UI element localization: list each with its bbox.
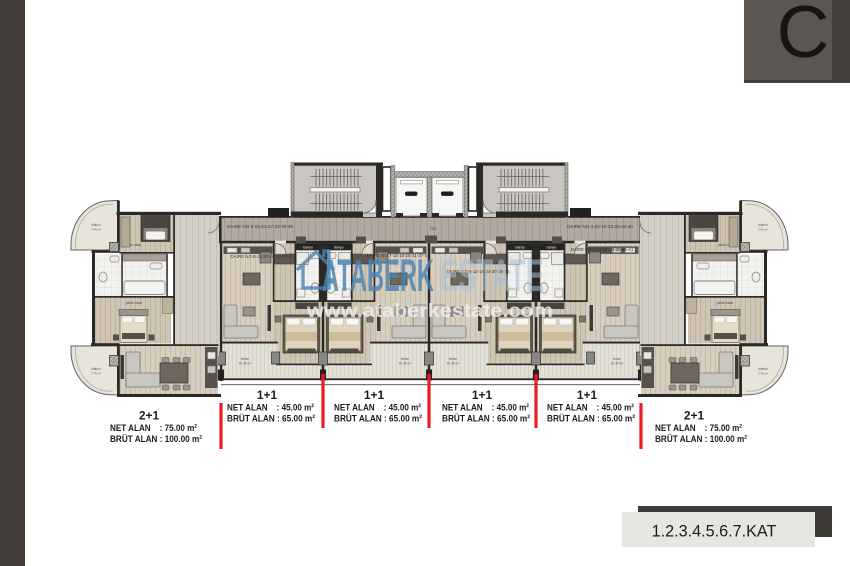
svg-text:C: C bbox=[777, 0, 830, 73]
svg-text:BRÜT ALAN : 100.00 m²: BRÜT ALAN : 100.00 m² bbox=[110, 433, 202, 444]
svg-text:teras: teras bbox=[613, 357, 621, 361]
svg-text:BRÜT ALAN : 65.00 m²: BRÜT ALAN : 65.00 m² bbox=[227, 413, 315, 424]
svg-text:NET ALAN : 45.00 m²: NET ALAN : 45.00 m² bbox=[334, 402, 421, 413]
svg-text:15.45 m²: 15.45 m² bbox=[239, 362, 252, 366]
svg-text:ATABERK: ATABERK bbox=[322, 250, 434, 301]
svg-text:1+1: 1+1 bbox=[364, 388, 385, 402]
svg-text:teras: teras bbox=[241, 357, 249, 361]
svg-text:2+1: 2+1 bbox=[139, 409, 160, 423]
svg-text:15.45 m²: 15.45 m² bbox=[611, 362, 624, 366]
svg-text:DAIRE NO 8-14-20-26-32-38-44: DAIRE NO 8-14-20-26-32-38-44 bbox=[231, 254, 295, 259]
svg-text:1+1: 1+1 bbox=[577, 388, 598, 402]
svg-text:1+1: 1+1 bbox=[472, 388, 493, 402]
svg-text:NET ALAN : 45.00 m²: NET ALAN : 45.00 m² bbox=[227, 402, 314, 413]
svg-text:NET ALAN : 75.00 m²: NET ALAN : 75.00 m² bbox=[110, 422, 197, 433]
svg-text:7.75 m²: 7.75 m² bbox=[91, 372, 101, 376]
svg-text:www.ataberkestate.com: www.ataberkestate.com bbox=[306, 300, 553, 322]
svg-text:BRÜT ALAN : 100.00 m²: BRÜT ALAN : 100.00 m² bbox=[655, 433, 747, 444]
svg-text:BRÜT ALAN : 65.00 m²: BRÜT ALAN : 65.00 m² bbox=[442, 413, 530, 424]
svg-text:teras: teras bbox=[401, 357, 409, 361]
svg-text:teras: teras bbox=[449, 357, 457, 361]
svg-text:banyo: banyo bbox=[547, 246, 557, 250]
svg-text:NET ALAN : 75.00 m²: NET ALAN : 75.00 m² bbox=[655, 422, 742, 433]
svg-text:15.45 m²: 15.45 m² bbox=[447, 362, 460, 366]
svg-text:BRÜT ALAN : 65.00 m²: BRÜT ALAN : 65.00 m² bbox=[334, 413, 422, 424]
svg-text:balkon: balkon bbox=[758, 223, 768, 227]
svg-text:balkon: balkon bbox=[91, 223, 101, 227]
svg-text:yatak odasi: yatak odasi bbox=[717, 301, 733, 305]
svg-text:NET ALAN : 45.00 m²: NET ALAN : 45.00 m² bbox=[547, 402, 634, 413]
svg-text:ESTATE: ESTATE bbox=[440, 250, 544, 301]
svg-text:7.96 m²: 7.96 m² bbox=[758, 228, 768, 232]
svg-text:balkon: balkon bbox=[91, 367, 101, 371]
svg-text:yatak odasi: yatak odasi bbox=[126, 301, 142, 305]
svg-text:banyo: banyo bbox=[334, 246, 344, 250]
svg-text:hol: hol bbox=[430, 226, 436, 231]
svg-text:DAIRE NO 4-10-16-22-28-34-40: DAIRE NO 4-10-16-22-28-34-40 bbox=[567, 224, 633, 229]
svg-text:balkon: balkon bbox=[758, 367, 768, 371]
svg-text:BRÜT ALAN : 65.00 m²: BRÜT ALAN : 65.00 m² bbox=[547, 413, 635, 424]
svg-text:DAIRE NO 9-15-21-27-33-39-45: DAIRE NO 9-15-21-27-33-39-45 bbox=[227, 224, 293, 229]
svg-text:7.75 m²: 7.75 m² bbox=[758, 372, 768, 376]
svg-text:1+1: 1+1 bbox=[257, 388, 278, 402]
svg-text:DAIRE NO 5-11-17-23-29-35-41: DAIRE NO 5-11-17-23-29-35-41 bbox=[571, 247, 634, 252]
svg-text:1.2.3.4.5.6.7.KAT: 1.2.3.4.5.6.7.KAT bbox=[652, 523, 777, 541]
svg-text:banyo: banyo bbox=[515, 246, 525, 250]
svg-text:7.96 m²: 7.96 m² bbox=[91, 228, 101, 232]
svg-text:15.45 m²: 15.45 m² bbox=[399, 362, 412, 366]
svg-text:banyo: banyo bbox=[303, 246, 313, 250]
svg-text:2+1: 2+1 bbox=[684, 409, 705, 423]
svg-text:NET ALAN : 45.00 m²: NET ALAN : 45.00 m² bbox=[442, 402, 529, 413]
